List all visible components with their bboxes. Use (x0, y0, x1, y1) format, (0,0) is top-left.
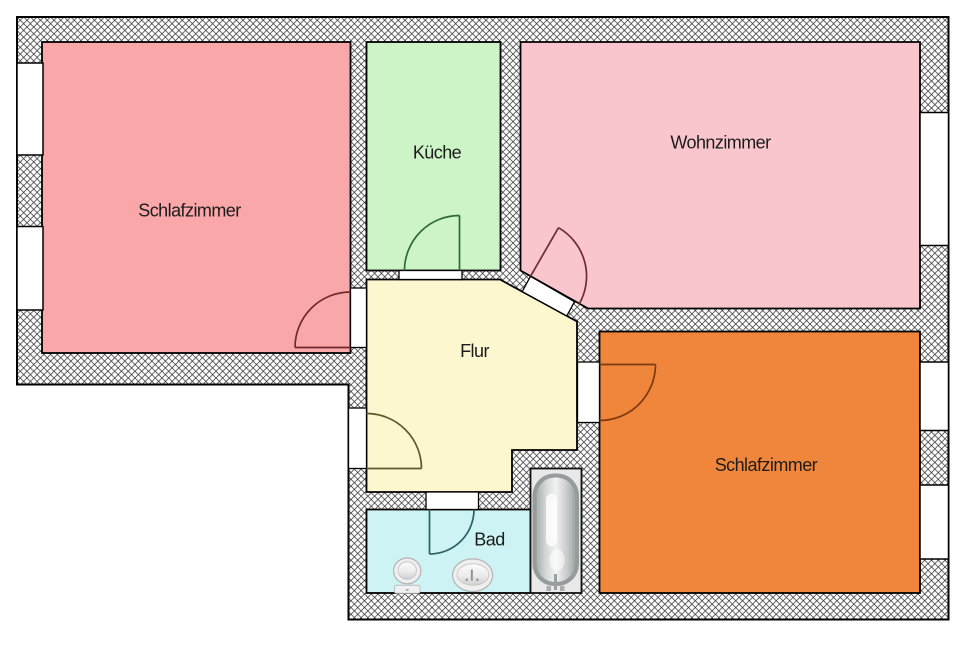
svg-text:Schlafzimmer: Schlafzimmer (715, 455, 818, 475)
svg-text:Wohnzimmer: Wohnzimmer (670, 133, 771, 153)
svg-text:Bad: Bad (474, 530, 504, 550)
svg-text:Küche: Küche (413, 143, 462, 163)
svg-text:Schlafzimmer: Schlafzimmer (138, 201, 241, 221)
svg-text:Flur: Flur (460, 341, 489, 361)
